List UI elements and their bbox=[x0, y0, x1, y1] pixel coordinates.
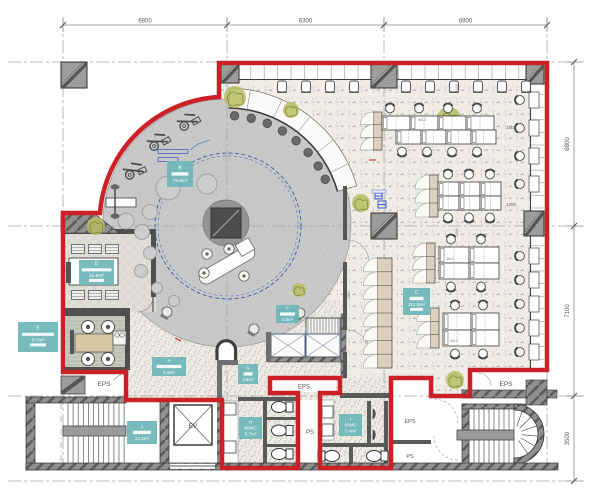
svg-text:112.5m²: 112.5m² bbox=[408, 302, 426, 308]
svg-text:6800: 6800 bbox=[459, 19, 473, 25]
svg-text:3500: 3500 bbox=[565, 431, 571, 445]
svg-text:G: G bbox=[246, 366, 250, 372]
svg-text:7.4m²: 7.4m² bbox=[345, 429, 357, 434]
svg-text:3.8m²: 3.8m² bbox=[242, 377, 254, 382]
svg-text:3612: 3612 bbox=[450, 339, 458, 343]
svg-text:4612: 4612 bbox=[418, 118, 426, 122]
svg-text:8.9m²: 8.9m² bbox=[163, 370, 175, 375]
svg-text:1550: 1550 bbox=[455, 84, 459, 92]
svg-text:6800: 6800 bbox=[138, 19, 152, 25]
svg-text:4.8m²: 4.8m² bbox=[282, 317, 294, 322]
svg-text:6300: 6300 bbox=[299, 19, 313, 25]
svg-text:79.6m²: 79.6m² bbox=[173, 178, 188, 184]
svg-text:EPS: EPS bbox=[404, 419, 415, 425]
svg-text:EV: EV bbox=[189, 423, 198, 430]
svg-text:9.7m²: 9.7m² bbox=[32, 338, 45, 344]
svg-text:8.7m²: 8.7m² bbox=[245, 432, 257, 437]
svg-text:1402: 1402 bbox=[506, 125, 517, 130]
svg-text:PS: PS bbox=[406, 454, 414, 460]
svg-text:EPS: EPS bbox=[97, 381, 111, 388]
svg-text:1550: 1550 bbox=[347, 292, 351, 300]
svg-text:11.6m²: 11.6m² bbox=[89, 273, 104, 279]
svg-text:F: F bbox=[286, 306, 289, 311]
svg-text:3612: 3612 bbox=[446, 257, 454, 261]
svg-text:1200: 1200 bbox=[506, 202, 517, 207]
svg-text:PS: PS bbox=[306, 430, 314, 436]
svg-text:C: C bbox=[415, 290, 419, 296]
svg-text:7100: 7100 bbox=[565, 304, 571, 318]
svg-text:1550: 1550 bbox=[455, 228, 459, 236]
svg-text:EPS: EPS bbox=[298, 385, 310, 391]
svg-text:I: I bbox=[350, 417, 351, 423]
svg-text:14.3m²: 14.3m² bbox=[135, 436, 150, 441]
svg-text:D: D bbox=[95, 261, 99, 267]
svg-text:6800: 6800 bbox=[565, 137, 571, 151]
svg-text:EPS: EPS bbox=[499, 381, 513, 388]
svg-text:H: H bbox=[249, 420, 253, 426]
